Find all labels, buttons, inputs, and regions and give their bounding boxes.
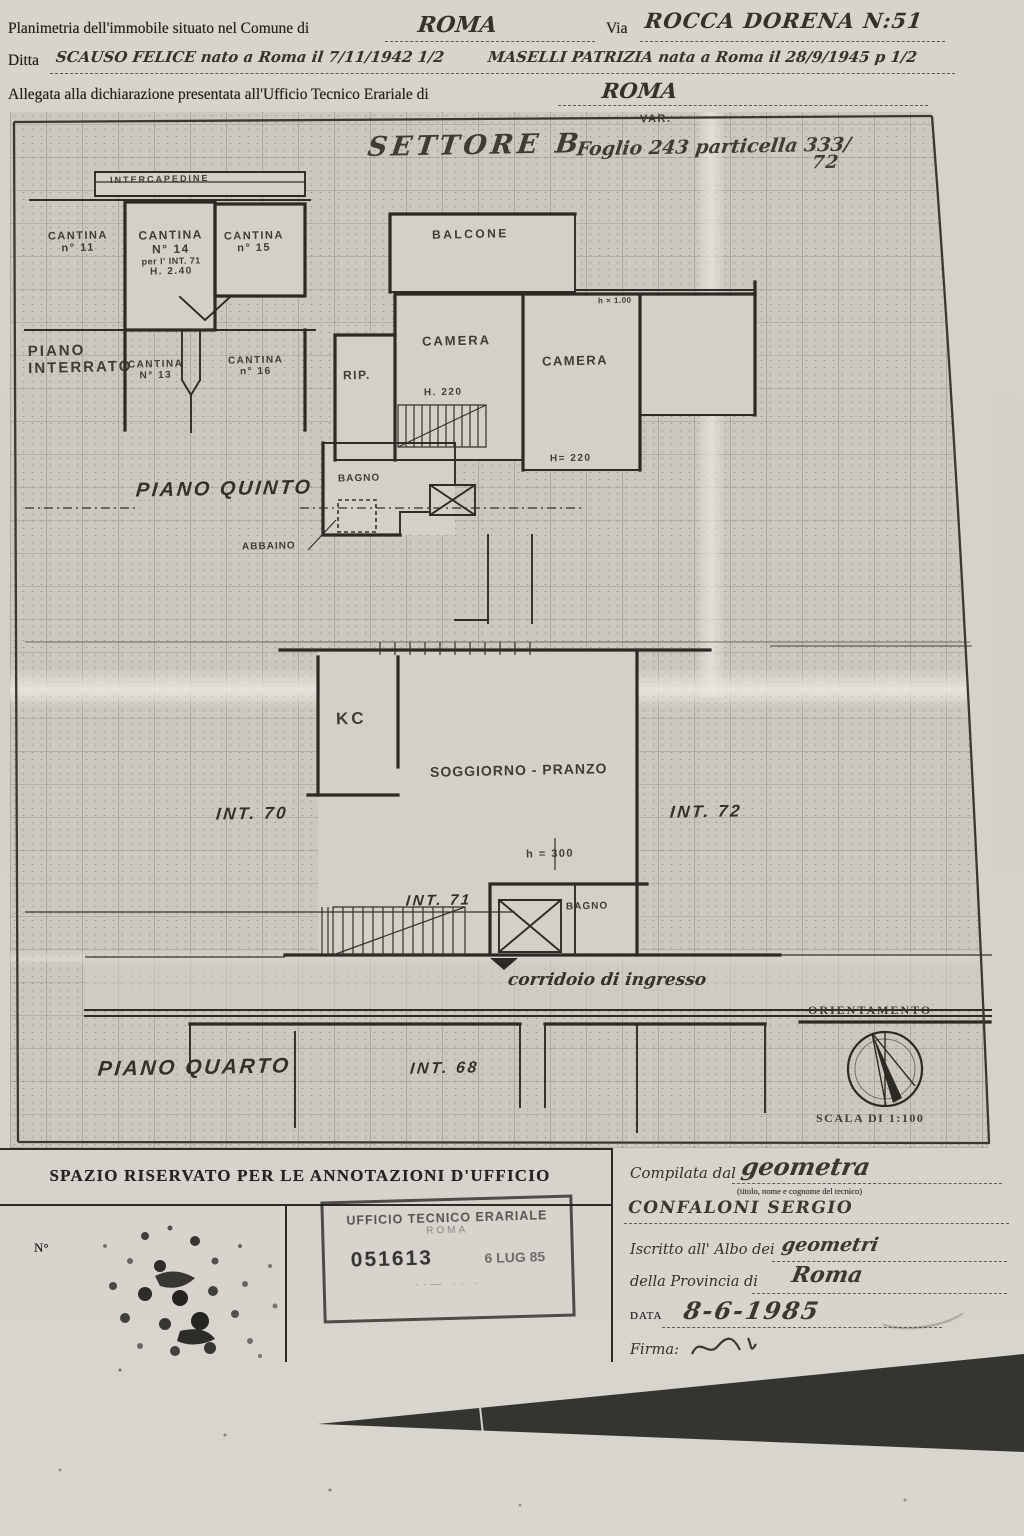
compass-icon [848, 1032, 922, 1106]
header-line3-label: Allegata alla dichiarazione presentata a… [8, 86, 429, 104]
via-value: ROCCA DORENA N:51 [643, 8, 924, 33]
plan-sheet: SETTORE B VAR. Foglio 243 particella 333… [10, 112, 992, 1148]
label-corridoio: corridoio di ingresso [507, 970, 708, 990]
label-h220-left: H. 220 [424, 387, 463, 399]
label-balcone: BALCONE [432, 226, 509, 242]
prov-fill-line [752, 1292, 1007, 1294]
prov-value: Roma [790, 1262, 865, 1288]
ute-stamp: UFFICIO TECNICO ERARIALE ROMA 051613 6 L… [320, 1195, 575, 1324]
label-intercapedine: INTERCAPEDINE [110, 173, 210, 185]
office-top-rule [0, 1148, 612, 1150]
compilata-label: Compilata dal [630, 1164, 736, 1182]
label-camera-right: CAMERA [542, 352, 608, 368]
albo-label: Iscritto all' Albo dei [630, 1242, 775, 1258]
ditta-fill-line [50, 72, 955, 74]
label-kc: KC [336, 709, 367, 730]
label-cantina14: CANTINA N° 14 per l' INT. 71 H. 2.40 [129, 227, 212, 278]
prov-label: della Provincia di [630, 1274, 758, 1290]
foglio-sub-label: 72 [811, 152, 841, 173]
certifier-name: CONFALONI SERGIO [626, 1198, 854, 1218]
label-h300: h = 300 [526, 847, 574, 860]
label-bagno-quarto: BAGNO [566, 901, 608, 913]
albo-value: geometri [780, 1234, 880, 1256]
label-piano-quarto: PIANO QUARTO [97, 1054, 292, 1081]
name-fill-line [624, 1222, 1009, 1224]
label-int68: INT. 68 [409, 1059, 479, 1078]
label-scala: SCALA DI 1:100 [816, 1111, 924, 1126]
label-abbaino: ABBAINO [242, 540, 296, 552]
data-value: 8-6-1985 [681, 1296, 822, 1325]
label-int71: INT. 71 [405, 891, 472, 909]
label-cantina15: CANTINA n° 15 [224, 229, 284, 254]
lines-dashed [25, 500, 585, 532]
label-orientamento: ORIENTAMENTO [808, 1003, 932, 1018]
settore-title: SETTORE B [366, 128, 584, 163]
ditta-value-a: SCAUSO FELICE nato a Roma il 7/11/1942 1… [55, 48, 445, 66]
compilata-fill-line [732, 1182, 1002, 1184]
label-piano-interrato: PIANO INTERRATO [28, 341, 133, 377]
label-cantina11: CANTINA n° 11 [48, 229, 108, 254]
label-piano-quinto: PIANO QUINTO [135, 476, 314, 502]
label-int70: INT. 70 [215, 803, 289, 824]
ufficio-fill-line [558, 104, 928, 106]
office-title: SPAZIO RISERVATO PER LE ANNOTAZIONI D'UF… [10, 1166, 590, 1186]
label-cantina13: CANTINA N° 13 [128, 358, 184, 381]
ditta-value-b: MASELLI PATRIZIA nata a Roma il 28/9/194… [487, 48, 918, 66]
var-label: VAR. [640, 113, 672, 126]
office-n-label: N° [34, 1240, 49, 1256]
header-line1-label: Planimetria dell'immobile situato nel Co… [8, 20, 309, 38]
scanned-document: { "colors": { "paper": "#d6d2ca", "ink":… [0, 0, 1024, 1536]
comune-value: ROMA [416, 12, 498, 38]
ute-stamp-date: 6 LUG 85 [484, 1248, 545, 1266]
label-camera-left: CAMERA [422, 332, 491, 348]
bottom-shadow-wedge [0, 1340, 1024, 1536]
ditta-label: Ditta [8, 52, 39, 70]
label-bagno-quinto: BAGNO [338, 473, 380, 485]
office-divider-vertical [611, 1148, 613, 1362]
data-label: DATA [630, 1310, 662, 1322]
label-rip: RIP. [343, 368, 371, 383]
via-label: Via [606, 20, 627, 38]
comune-fill-line [385, 40, 595, 42]
certifier-note: (titolo, nome e cognome del tecnico) [737, 1186, 862, 1196]
ute-stamp-number: 051613 [350, 1246, 433, 1272]
form-header: Planimetria dell'immobile situato nel Co… [0, 0, 1024, 112]
ute-stamp-smudge-row: ··— ·· · [326, 1275, 572, 1294]
label-h220-right: H= 220 [550, 453, 592, 465]
compilata-value: geometra [739, 1152, 872, 1181]
ufficio-value: ROMA [600, 78, 678, 103]
via-fill-line [640, 40, 945, 42]
label-int72: INT. 72 [669, 801, 743, 822]
label-finestra: h × 1.00 [598, 296, 632, 306]
certifier-block: Compilata dal geometra (titolo, nome e c… [622, 1150, 1022, 1366]
label-cantina16: CANTINA n° 16 [228, 354, 284, 377]
